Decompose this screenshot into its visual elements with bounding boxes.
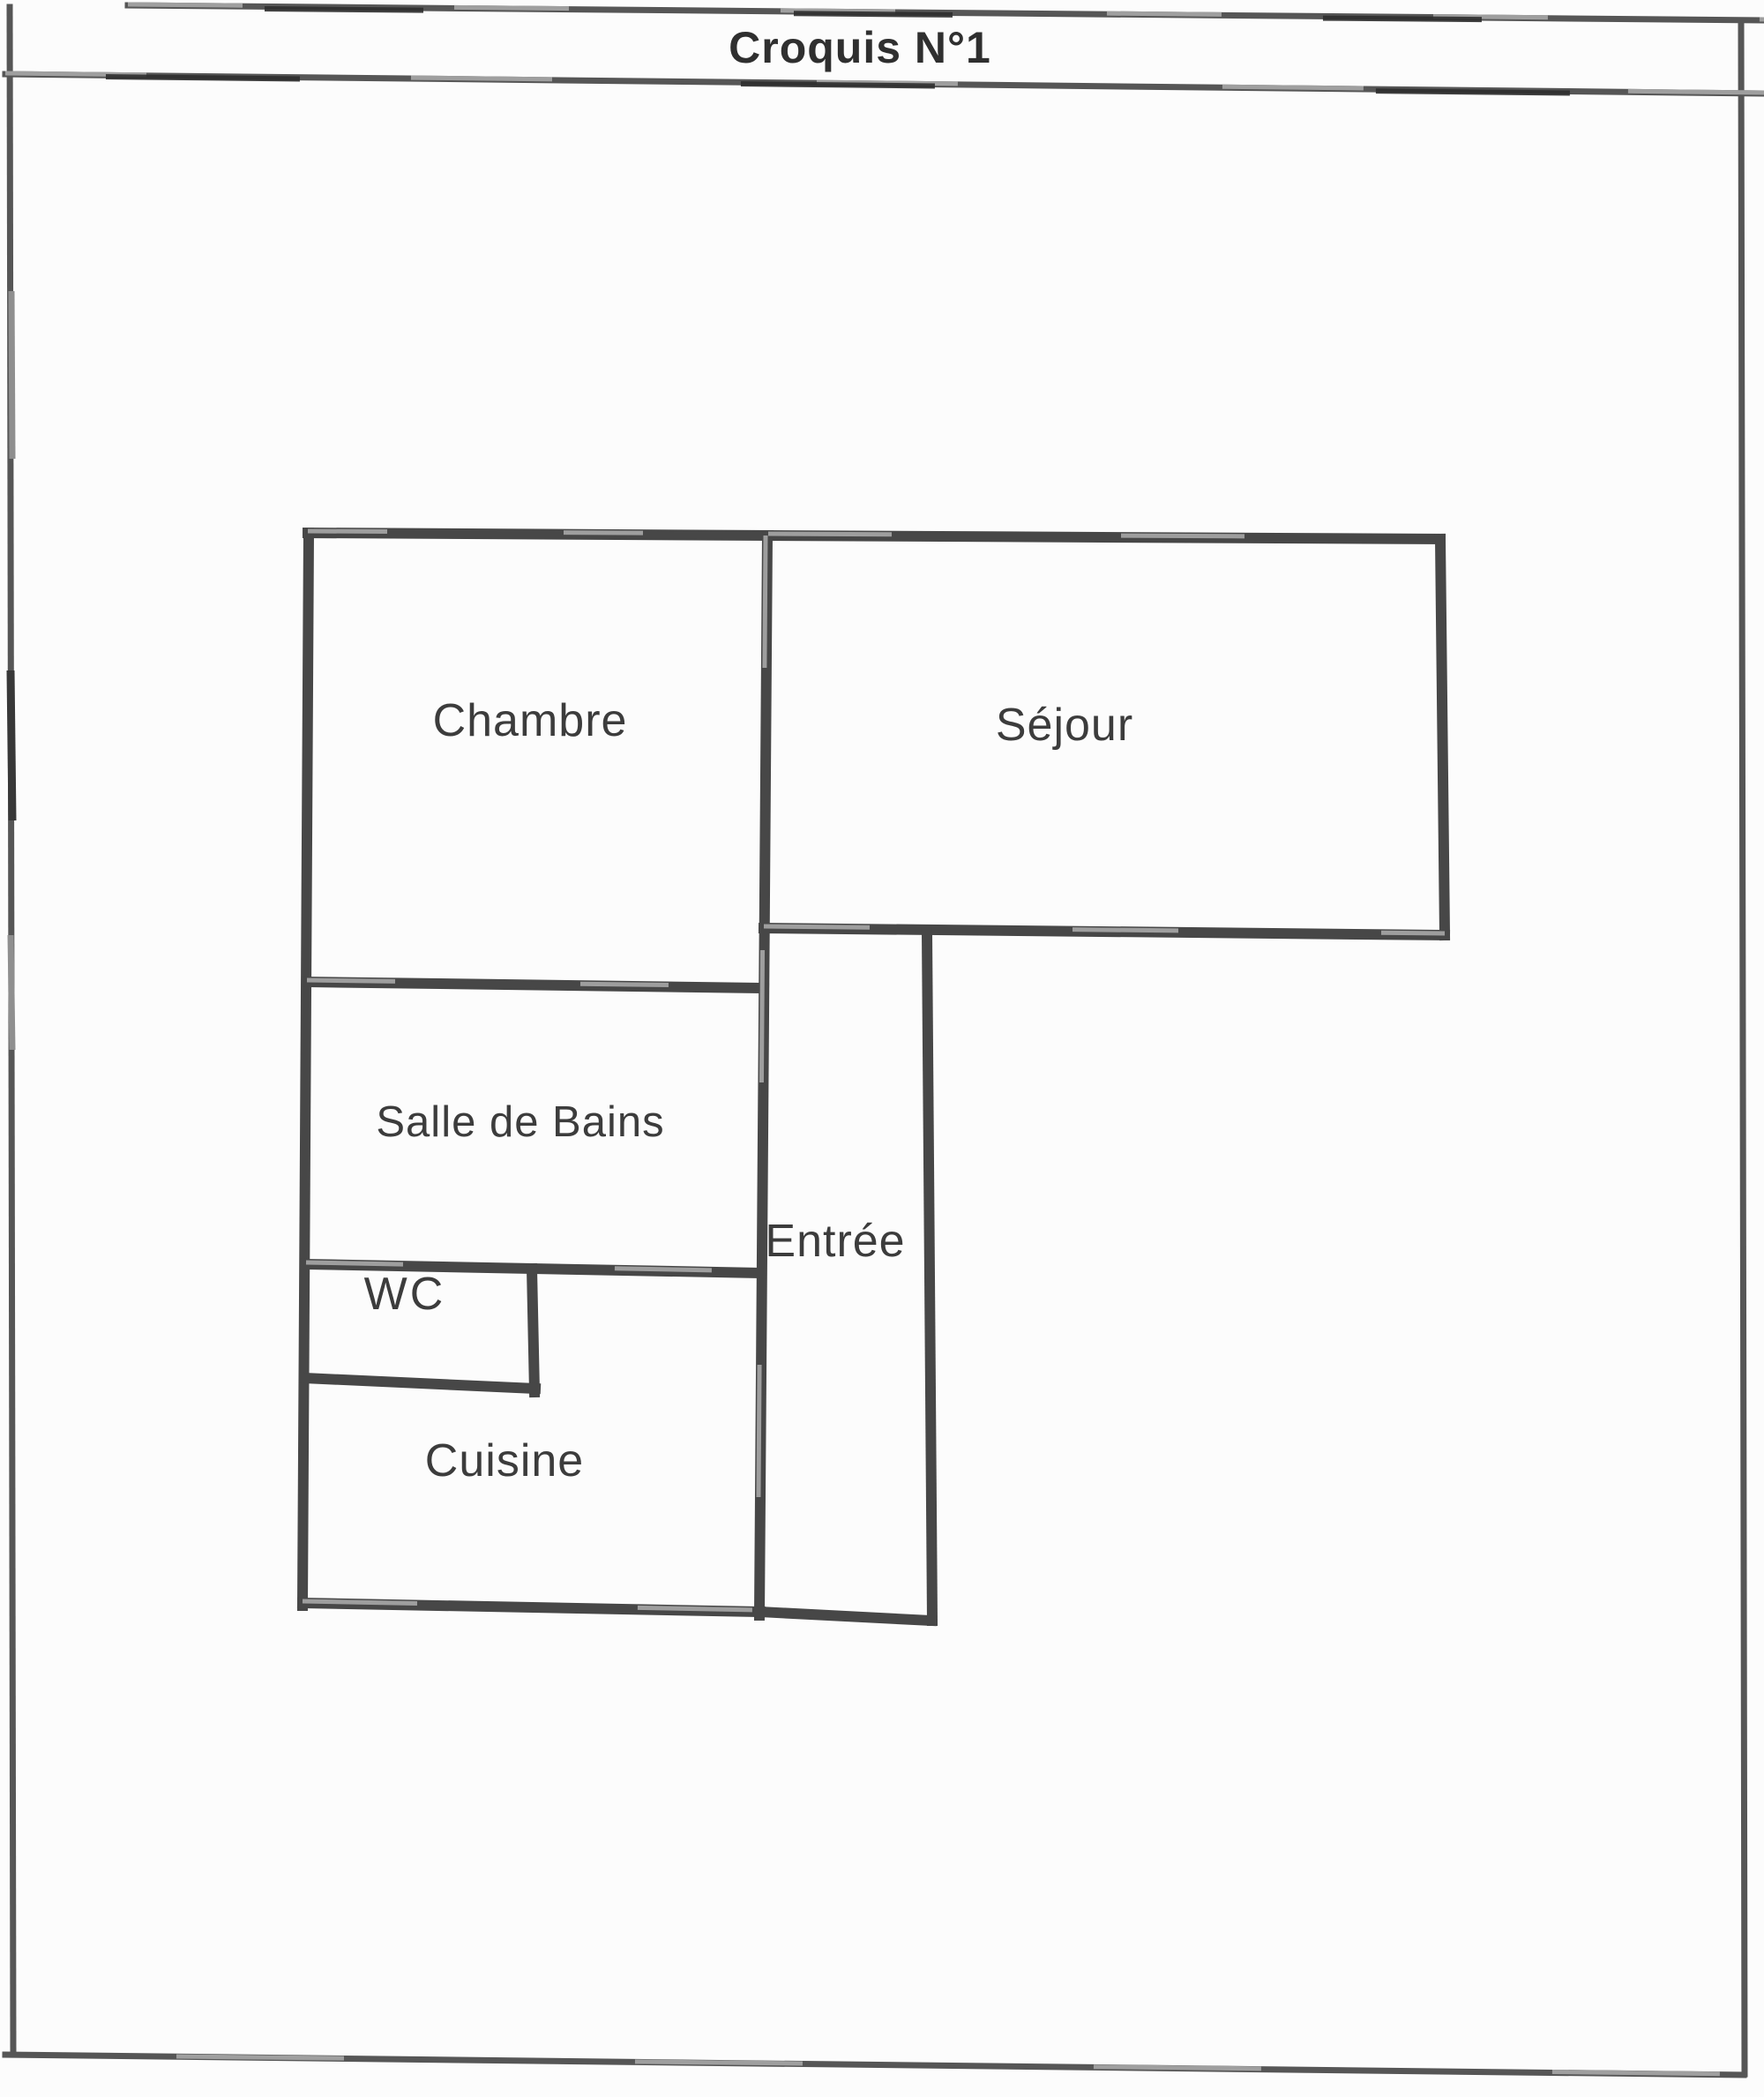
room-label-entree: Entrée	[765, 1215, 905, 1268]
scan-artifact	[11, 291, 12, 459]
room-label-chambre: Chambre	[433, 694, 628, 747]
room-label-sejour: Séjour	[996, 699, 1133, 752]
scan-artifact	[11, 670, 12, 820]
wall-wc-right	[532, 1269, 534, 1392]
wall-entree-bottom	[759, 1612, 931, 1621]
wall-sejour-right	[1440, 539, 1445, 935]
wall-entree-right	[927, 933, 932, 1621]
wall-plan-left	[303, 533, 309, 1606]
floor-plan-drawing	[0, 0, 1764, 2097]
page-title: Croquis N°1	[729, 22, 991, 73]
page-right-border	[1741, 21, 1745, 2074]
room-label-cuisine: Cuisine	[425, 1434, 584, 1487]
room-label-salle-de-bains: Salle de Bains	[376, 1097, 664, 1147]
scan-artifact	[11, 935, 12, 1050]
page-border-lines	[5, 4, 1764, 2075]
room-label-wc: WC	[364, 1268, 446, 1321]
wall-wc-bottom	[304, 1378, 535, 1389]
scanned-document-page: Croquis N°1 Chambre Séjour Salle de Bain…	[0, 0, 1764, 2097]
